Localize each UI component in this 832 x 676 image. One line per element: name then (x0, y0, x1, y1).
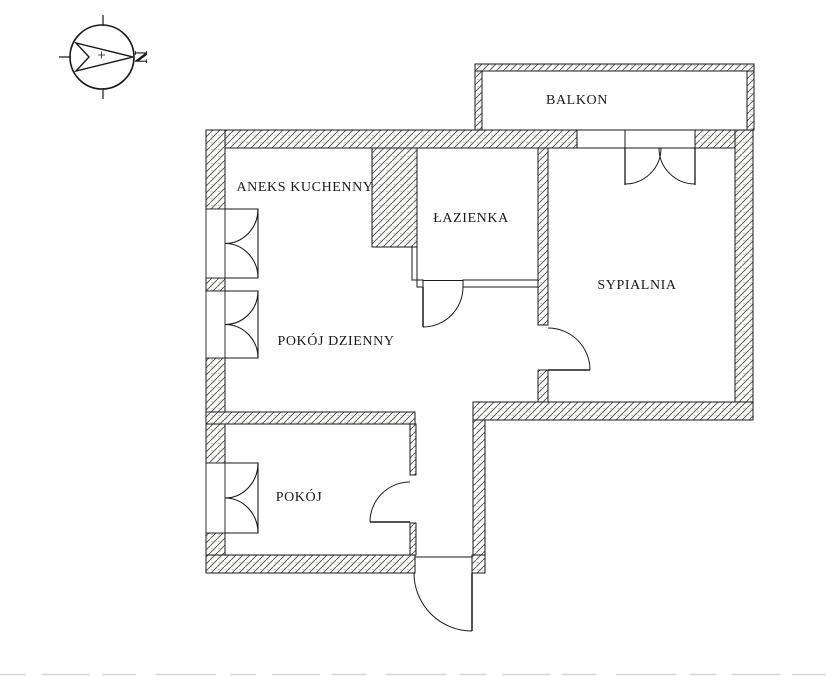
wall-bathroom-bottom-stub (417, 280, 423, 287)
room-label-lazienka: ŁAZIENKA (433, 211, 509, 226)
wall-bathroom-bottom (463, 280, 538, 287)
balcony-wall-right (747, 71, 754, 130)
room-label-pokoj-dzienny: POKÓJ DZIENNY (277, 332, 394, 349)
compass-north-label: N (131, 51, 151, 64)
balcony-wall-left (475, 71, 482, 130)
plan-background (0, 0, 832, 676)
wall-bedroom-bottom (473, 402, 753, 420)
balcony-wall-top (475, 64, 754, 71)
wall-left-segment-1 (206, 130, 225, 209)
wall-pokoj-right-upper (410, 424, 416, 475)
balcony-window-band (577, 130, 695, 148)
wall-top-left-segment (206, 130, 577, 148)
wall-bottom-right-segment (472, 555, 485, 573)
wall-bedroom-divider-lower (538, 370, 548, 402)
balcony-band-frame (577, 130, 695, 148)
wall-right (735, 130, 753, 420)
floor-plan-drawing: N (0, 0, 832, 676)
floor-plan-canvas: N (0, 0, 832, 676)
wall-livingroom-pokoj (206, 412, 415, 424)
room-label-pokoj: POKÓJ (276, 488, 323, 505)
wall-left-segment-2 (206, 358, 225, 463)
wall-bottom-left-segment (206, 555, 415, 573)
wall-pokoj-right-lower (410, 523, 416, 555)
wall-kitchen-bathroom (372, 148, 417, 247)
room-label-aneks-kuchenny: ANEKS KUCHENNY (236, 180, 373, 195)
room-label-sypialnia: SYPIALNIA (597, 278, 677, 293)
wall-left-pier (206, 278, 225, 291)
room-label-balkon: BALKON (546, 93, 608, 108)
wall-corridor-right (473, 420, 485, 573)
wall-bedroom-divider-upper (538, 148, 548, 325)
wall-bathroom-left-thin (412, 247, 417, 280)
